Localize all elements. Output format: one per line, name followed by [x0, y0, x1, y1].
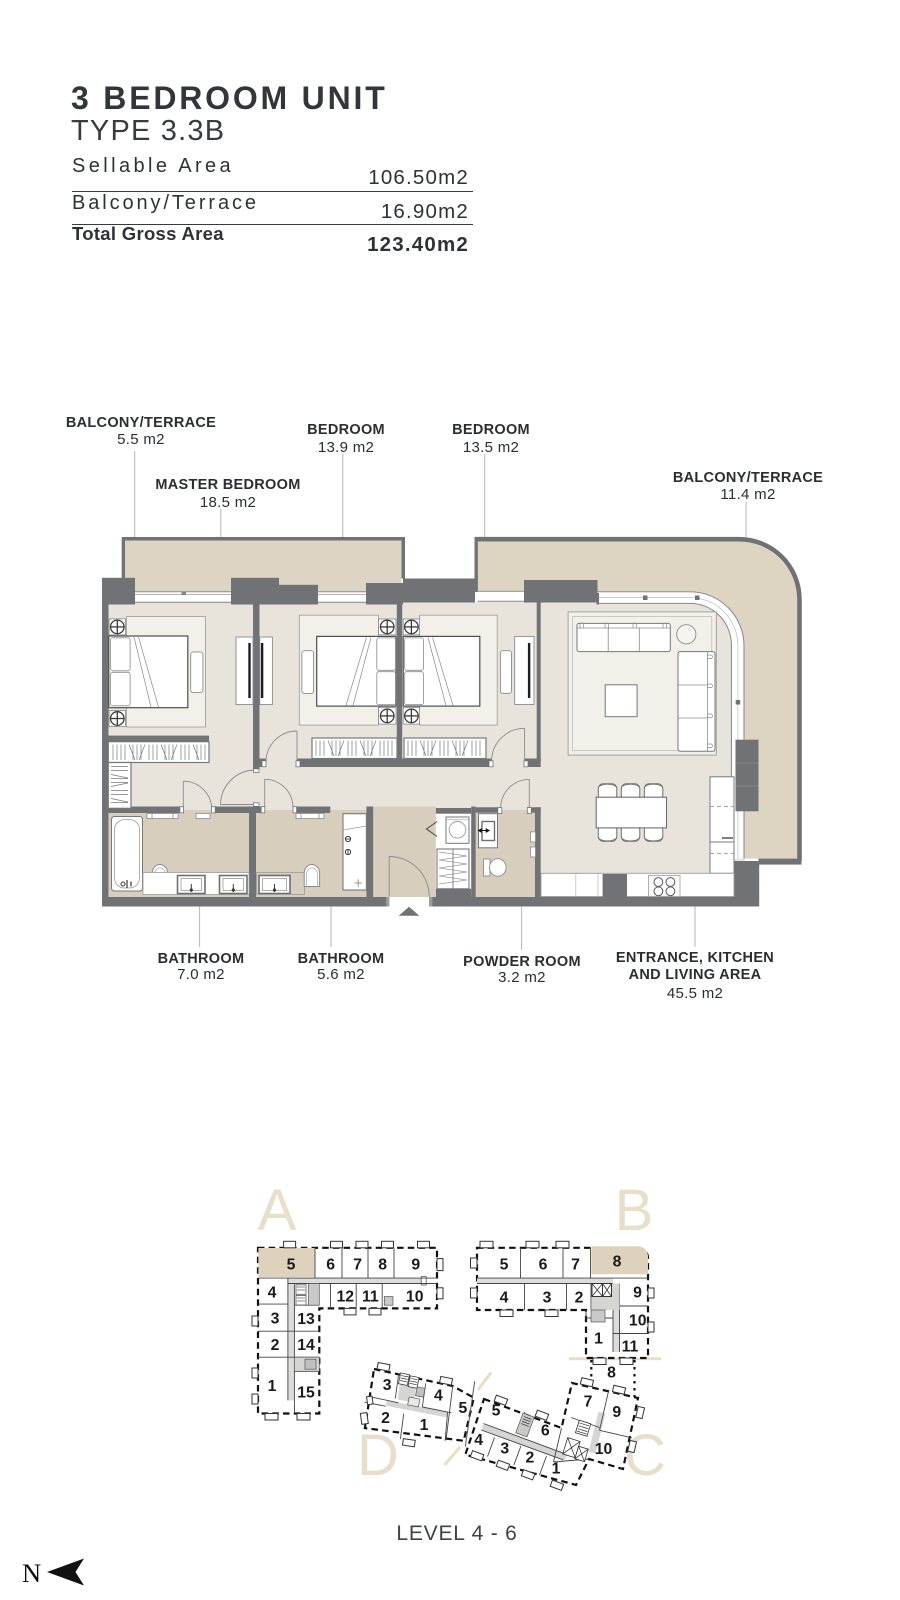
svg-text:9: 9 [411, 1257, 420, 1274]
svg-text:9: 9 [612, 1404, 621, 1421]
svg-text:1: 1 [420, 1417, 429, 1434]
svg-text:12: 12 [337, 1289, 355, 1306]
svg-text:4: 4 [474, 1432, 483, 1449]
svg-text:9: 9 [633, 1285, 642, 1302]
svg-text:10: 10 [595, 1441, 613, 1458]
svg-text:8: 8 [378, 1257, 387, 1274]
svg-text:2: 2 [381, 1410, 390, 1427]
svg-text:6: 6 [539, 1257, 548, 1274]
svg-text:2: 2 [575, 1290, 584, 1307]
svg-text:5: 5 [492, 1403, 501, 1420]
svg-text:2: 2 [526, 1449, 535, 1466]
svg-text:3: 3 [543, 1290, 552, 1307]
svg-text:5: 5 [459, 1400, 468, 1417]
svg-text:10: 10 [406, 1289, 424, 1306]
svg-text:3: 3 [383, 1377, 392, 1394]
svg-text:1: 1 [268, 1378, 277, 1395]
svg-text:11: 11 [622, 1339, 639, 1356]
svg-text:8: 8 [613, 1254, 622, 1271]
svg-text:2: 2 [271, 1337, 280, 1354]
svg-text:7: 7 [571, 1257, 580, 1274]
svg-text:4: 4 [434, 1388, 443, 1405]
svg-text:1: 1 [594, 1331, 603, 1348]
svg-text:15: 15 [297, 1385, 315, 1402]
svg-text:3: 3 [271, 1311, 280, 1328]
svg-text:1: 1 [552, 1461, 561, 1478]
svg-text:5: 5 [287, 1257, 296, 1274]
svg-text:7: 7 [584, 1393, 593, 1410]
svg-text:4: 4 [500, 1290, 509, 1307]
svg-text:11: 11 [362, 1289, 379, 1306]
svg-text:5: 5 [500, 1257, 509, 1274]
svg-text:8: 8 [607, 1365, 616, 1382]
svg-text:4: 4 [268, 1285, 277, 1302]
svg-text:10: 10 [629, 1313, 647, 1330]
svg-text:13: 13 [297, 1311, 315, 1328]
svg-text:6: 6 [541, 1423, 550, 1440]
svg-text:7: 7 [353, 1257, 362, 1274]
svg-text:3: 3 [500, 1441, 509, 1458]
svg-text:6: 6 [326, 1257, 335, 1274]
svg-text:14: 14 [297, 1337, 315, 1354]
